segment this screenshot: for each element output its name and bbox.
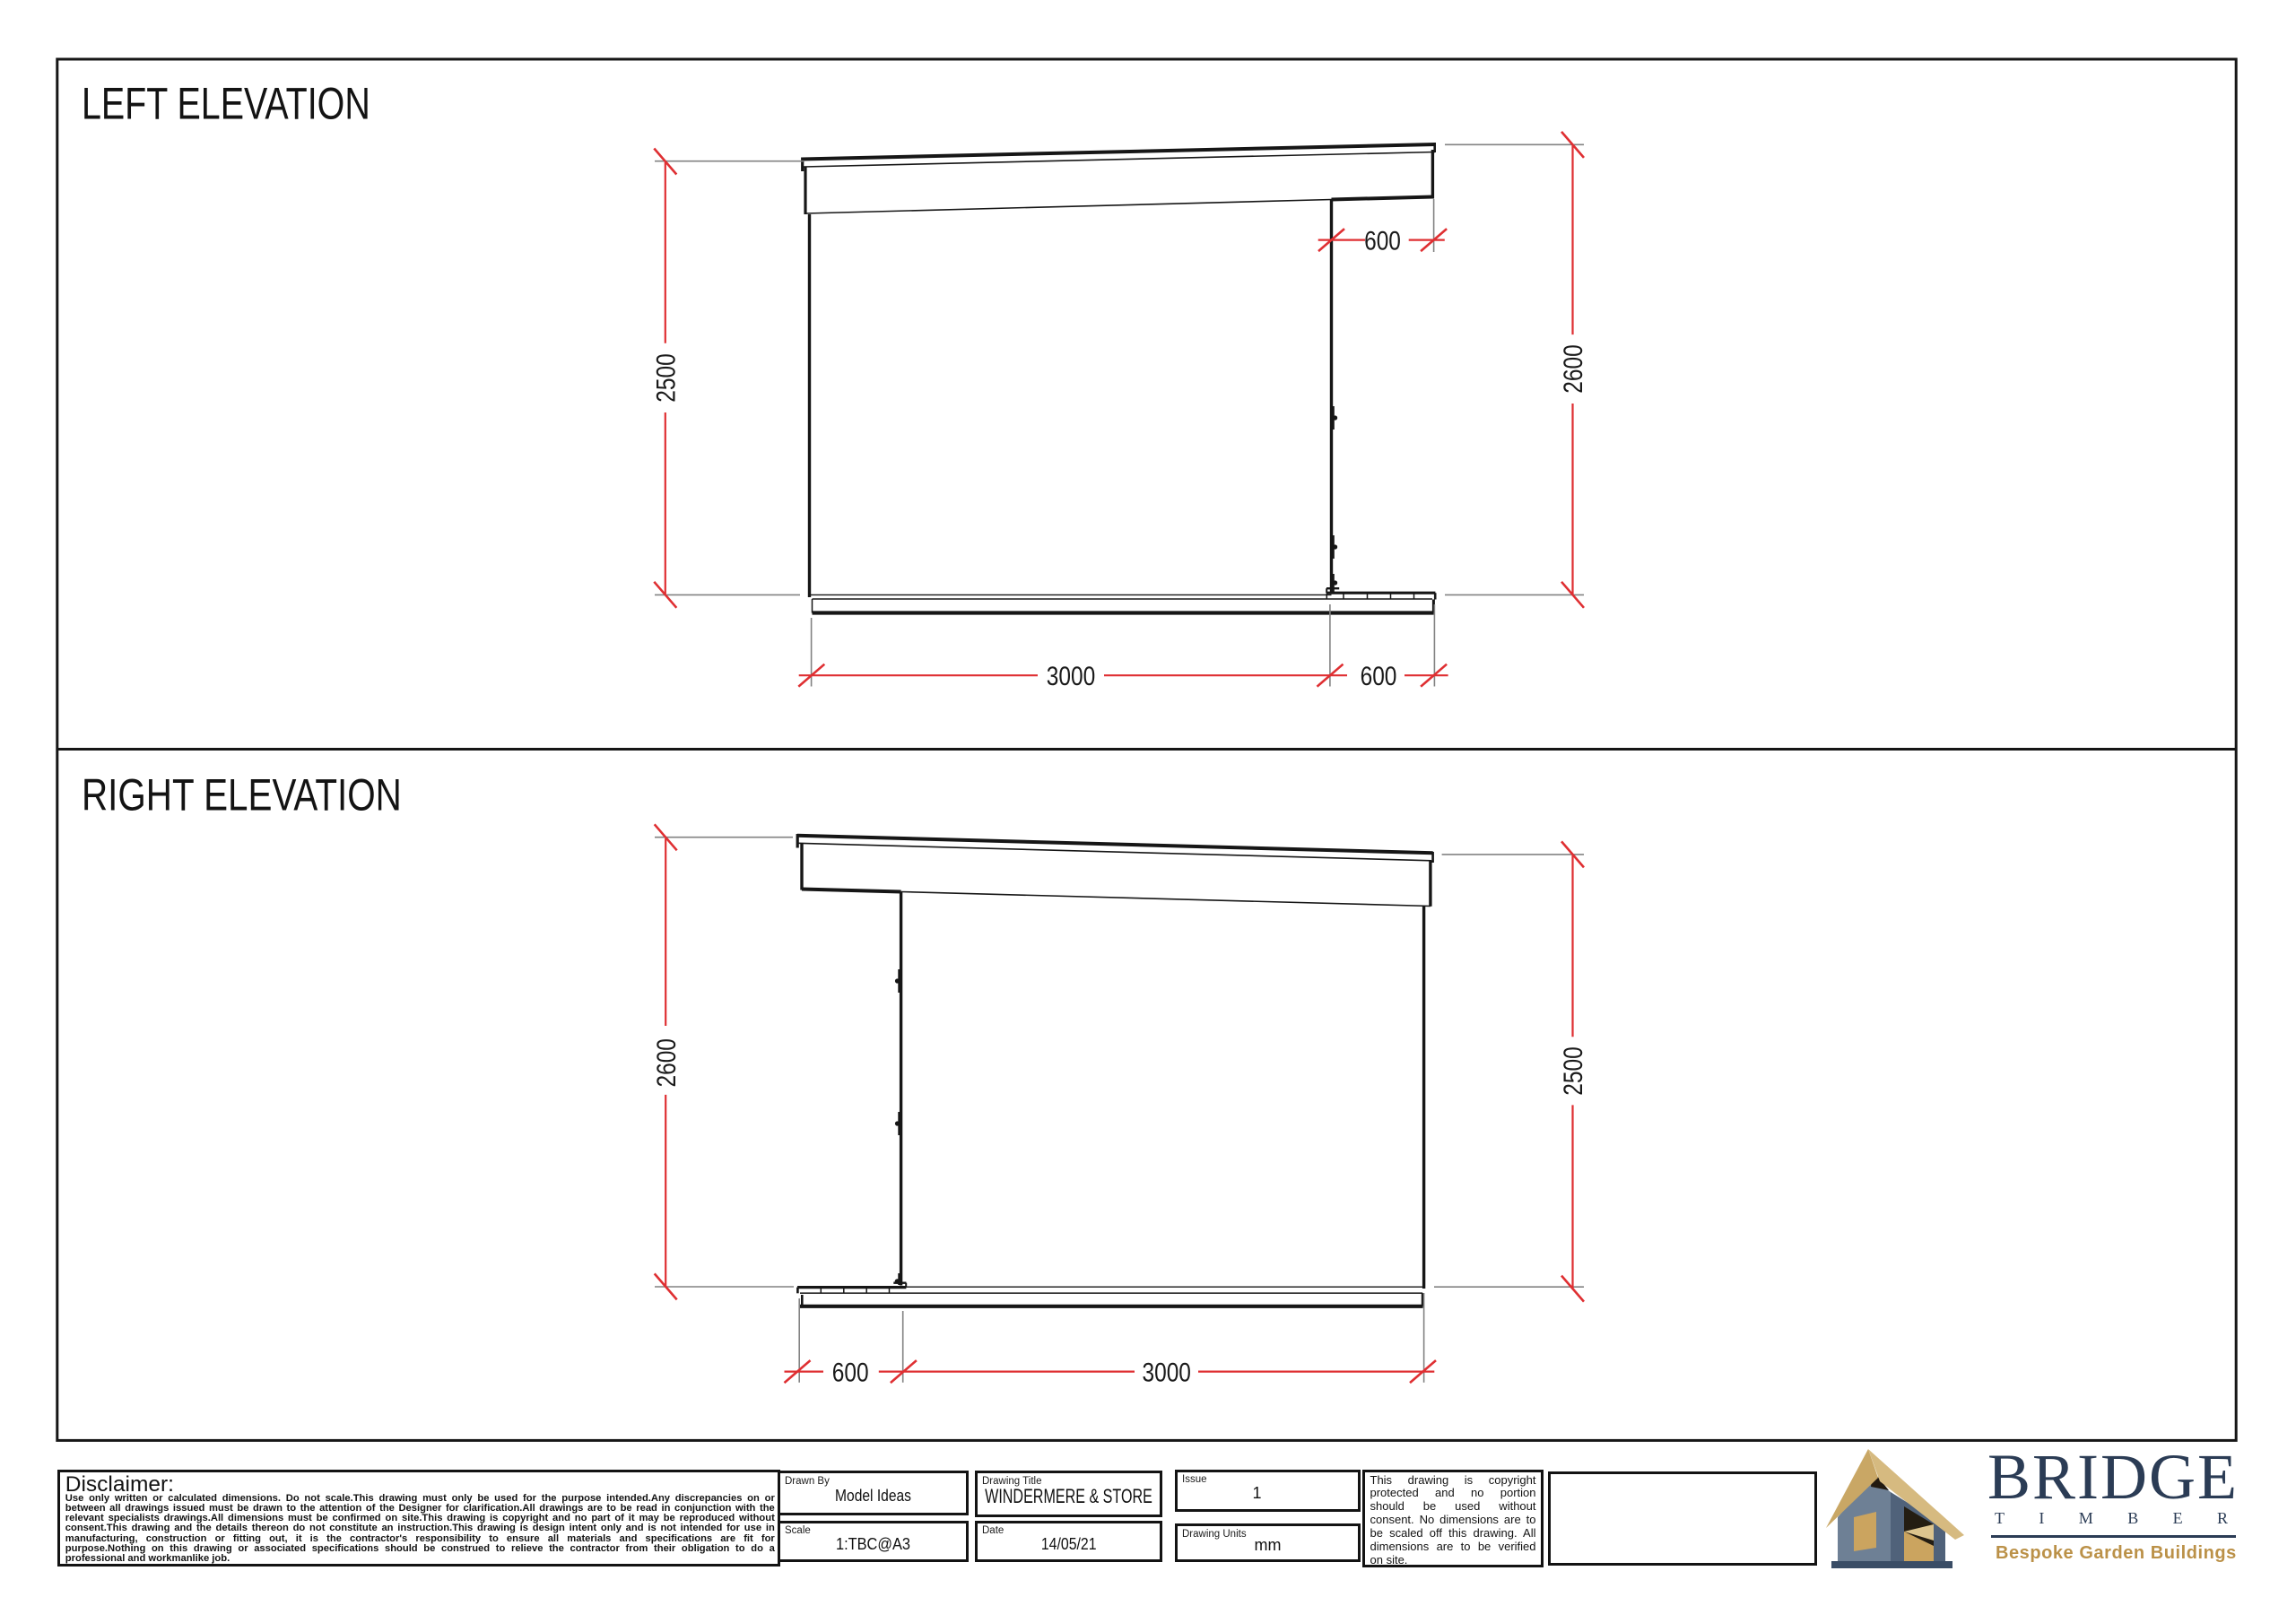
svg-text:2500: 2500 [1558, 1046, 1588, 1095]
svg-text:RIGHT ELEVATION: RIGHT ELEVATION [82, 769, 402, 820]
svg-text:600: 600 [1364, 225, 1401, 256]
svg-text:3000: 3000 [1047, 661, 1095, 691]
svg-text:LEFT ELEVATION: LEFT ELEVATION [82, 78, 370, 129]
svg-text:3000: 3000 [1142, 1357, 1190, 1387]
svg-text:2600: 2600 [1558, 344, 1588, 393]
svg-text:600: 600 [832, 1357, 869, 1387]
svg-text:2500: 2500 [650, 353, 681, 402]
svg-text:600: 600 [1361, 661, 1397, 691]
svg-text:2600: 2600 [651, 1038, 682, 1087]
